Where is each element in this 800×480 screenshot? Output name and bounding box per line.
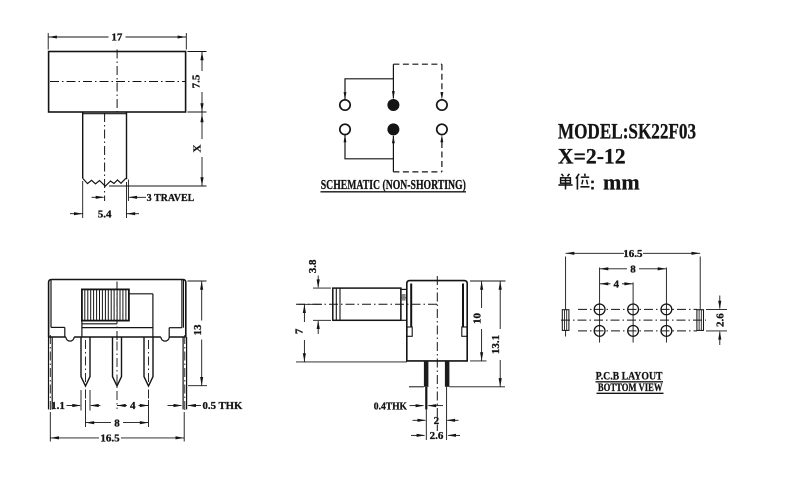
svg-text:1.1: 1.1: [51, 400, 65, 412]
svg-text:mm: mm: [603, 169, 640, 194]
svg-text:2: 2: [434, 415, 440, 427]
svg-text:13.1: 13.1: [490, 335, 502, 354]
svg-text:0.4THK: 0.4THK: [374, 401, 407, 413]
svg-text:BOTTOM VIEW: BOTTOM VIEW: [598, 382, 663, 395]
svg-text:7: 7: [294, 328, 306, 334]
svg-text:SCHEMATIC (NON-SHORTING): SCHEMATIC (NON-SHORTING): [321, 176, 466, 192]
svg-text:3.8: 3.8: [307, 259, 319, 273]
svg-text:2.6: 2.6: [430, 430, 444, 442]
svg-text:7.5: 7.5: [190, 74, 202, 88]
svg-text:MODEL:SK22F03: MODEL:SK22F03: [558, 119, 696, 144]
svg-text:3 TRAVEL: 3 TRAVEL: [147, 193, 195, 205]
svg-text:X: X: [191, 144, 203, 152]
svg-text:P.C.B LAYOUT: P.C.B LAYOUT: [596, 369, 664, 382]
svg-text:0.5 THK: 0.5 THK: [203, 400, 243, 412]
svg-text:17: 17: [111, 32, 123, 44]
svg-text:4: 4: [614, 279, 620, 291]
svg-text:4: 4: [130, 400, 136, 412]
svg-text:13: 13: [192, 324, 204, 336]
svg-text:10: 10: [471, 313, 483, 325]
svg-text:8: 8: [630, 264, 636, 276]
svg-text:16.5: 16.5: [100, 433, 120, 445]
svg-text:X=2-12: X=2-12: [558, 144, 626, 168]
svg-text:8: 8: [114, 417, 120, 429]
svg-text:2.6: 2.6: [714, 313, 726, 327]
svg-text:16.5: 16.5: [623, 248, 643, 260]
svg-text:5.4: 5.4: [98, 208, 112, 220]
